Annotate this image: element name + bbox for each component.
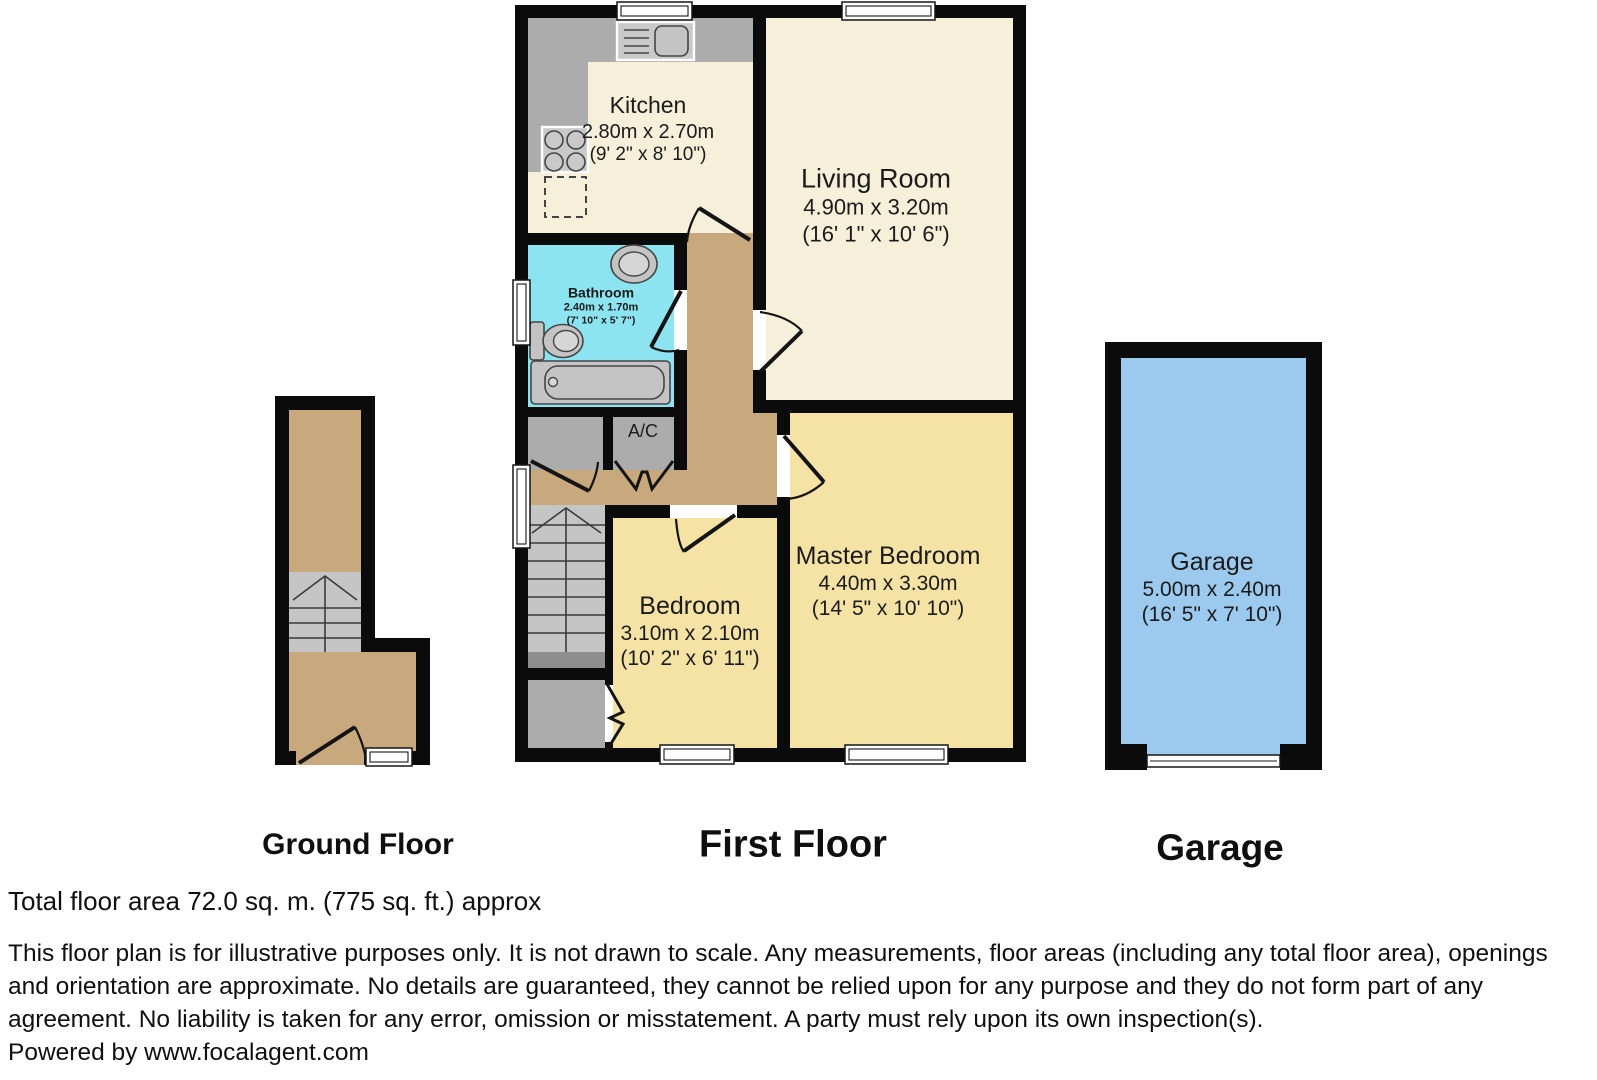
bedroom-window bbox=[660, 745, 734, 764]
kitchen-sink bbox=[617, 22, 694, 60]
bathroom-name: Bathroom bbox=[564, 285, 639, 302]
ac-name: A/C bbox=[628, 421, 658, 443]
bedroom-name: Bedroom bbox=[620, 591, 759, 621]
bathroom-bathtub bbox=[531, 361, 670, 404]
garage-name: Garage bbox=[1142, 547, 1283, 577]
bedroom-dim-metric: 3.10m x 2.10m bbox=[620, 621, 759, 646]
bathroom-basin bbox=[611, 245, 657, 283]
bathroom-window bbox=[513, 280, 530, 345]
bathroom-dim-imperial: (7' 10" x 5' 7") bbox=[564, 315, 639, 328]
total-floor-area: Total floor area 72.0 sq. m. (775 sq. ft… bbox=[8, 886, 1590, 917]
living-room-dim-imperial: (16' 1" x 10' 6") bbox=[801, 221, 951, 247]
kitchen-label: Kitchen 2.80m x 2.70m (9' 2" x 8' 10") bbox=[582, 92, 714, 166]
stair-closet-wall bbox=[528, 668, 605, 680]
floor-plan-page: Kitchen 2.80m x 2.70m (9' 2" x 8' 10") L… bbox=[0, 0, 1597, 1080]
ac-label: A/C bbox=[628, 421, 658, 443]
ground-window bbox=[366, 748, 412, 766]
garage-dim-metric: 5.00m x 2.40m bbox=[1142, 577, 1283, 602]
first-floor-stairs bbox=[528, 505, 605, 668]
floor-plan-drawing bbox=[0, 0, 1597, 880]
master-bedroom-name: Master Bedroom bbox=[796, 541, 981, 571]
kitchen-dim-metric: 2.80m x 2.70m bbox=[582, 119, 714, 143]
ground-floor-stairs bbox=[289, 572, 361, 652]
living-room-window bbox=[842, 2, 935, 20]
bedroom-label: Bedroom 3.10m x 2.10m (10' 2" x 6' 11") bbox=[620, 591, 759, 671]
living-room-name: Living Room bbox=[801, 162, 951, 194]
under-stair-closet-floor bbox=[528, 680, 605, 748]
bathroom-label: Bathroom 2.40m x 1.70m (7' 10" x 5' 7") bbox=[564, 285, 639, 328]
ground-floor-plan bbox=[275, 396, 430, 766]
bathroom-dim-metric: 2.40m x 1.70m bbox=[564, 302, 639, 315]
living-room-dim-metric: 4.90m x 3.20m bbox=[801, 195, 951, 221]
caption-first-floor: First Floor bbox=[699, 824, 887, 867]
powered-by-text: Powered by www.focalagent.com bbox=[8, 1036, 1590, 1069]
master-bedroom-dim-metric: 4.40m x 3.30m bbox=[796, 571, 981, 596]
closet-floor bbox=[528, 417, 603, 470]
garage-door bbox=[1147, 755, 1280, 767]
kitchen-dim-imperial: (9' 2" x 8' 10") bbox=[582, 143, 714, 166]
disclaimer-text: This floor plan is for illustrative purp… bbox=[8, 937, 1590, 1036]
kitchen-window bbox=[617, 2, 692, 20]
hall-window bbox=[513, 465, 530, 548]
garage-door-post-right bbox=[1280, 744, 1306, 770]
footer: Total floor area 72.0 sq. m. (775 sq. ft… bbox=[8, 886, 1590, 1069]
master-bedroom-label: Master Bedroom 4.40m x 3.30m (14' 5" x 1… bbox=[796, 541, 981, 621]
caption-ground-floor: Ground Floor bbox=[262, 828, 454, 862]
living-room-label: Living Room 4.90m x 3.20m (16' 1" x 10' … bbox=[801, 162, 951, 247]
garage-dim-imperial: (16' 5" x 7' 10") bbox=[1142, 602, 1283, 627]
garage-room-label: Garage 5.00m x 2.40m (16' 5" x 7' 10") bbox=[1142, 547, 1283, 627]
garage-door-post-left bbox=[1121, 744, 1147, 770]
master-bedroom-dim-imperial: (14' 5" x 10' 10") bbox=[796, 596, 981, 621]
master-bedroom-window bbox=[845, 745, 948, 764]
bathroom-toilet bbox=[530, 322, 583, 360]
caption-garage: Garage bbox=[1156, 827, 1284, 869]
bedroom-dim-imperial: (10' 2" x 6' 11") bbox=[620, 646, 759, 671]
kitchen-name: Kitchen bbox=[582, 92, 714, 120]
